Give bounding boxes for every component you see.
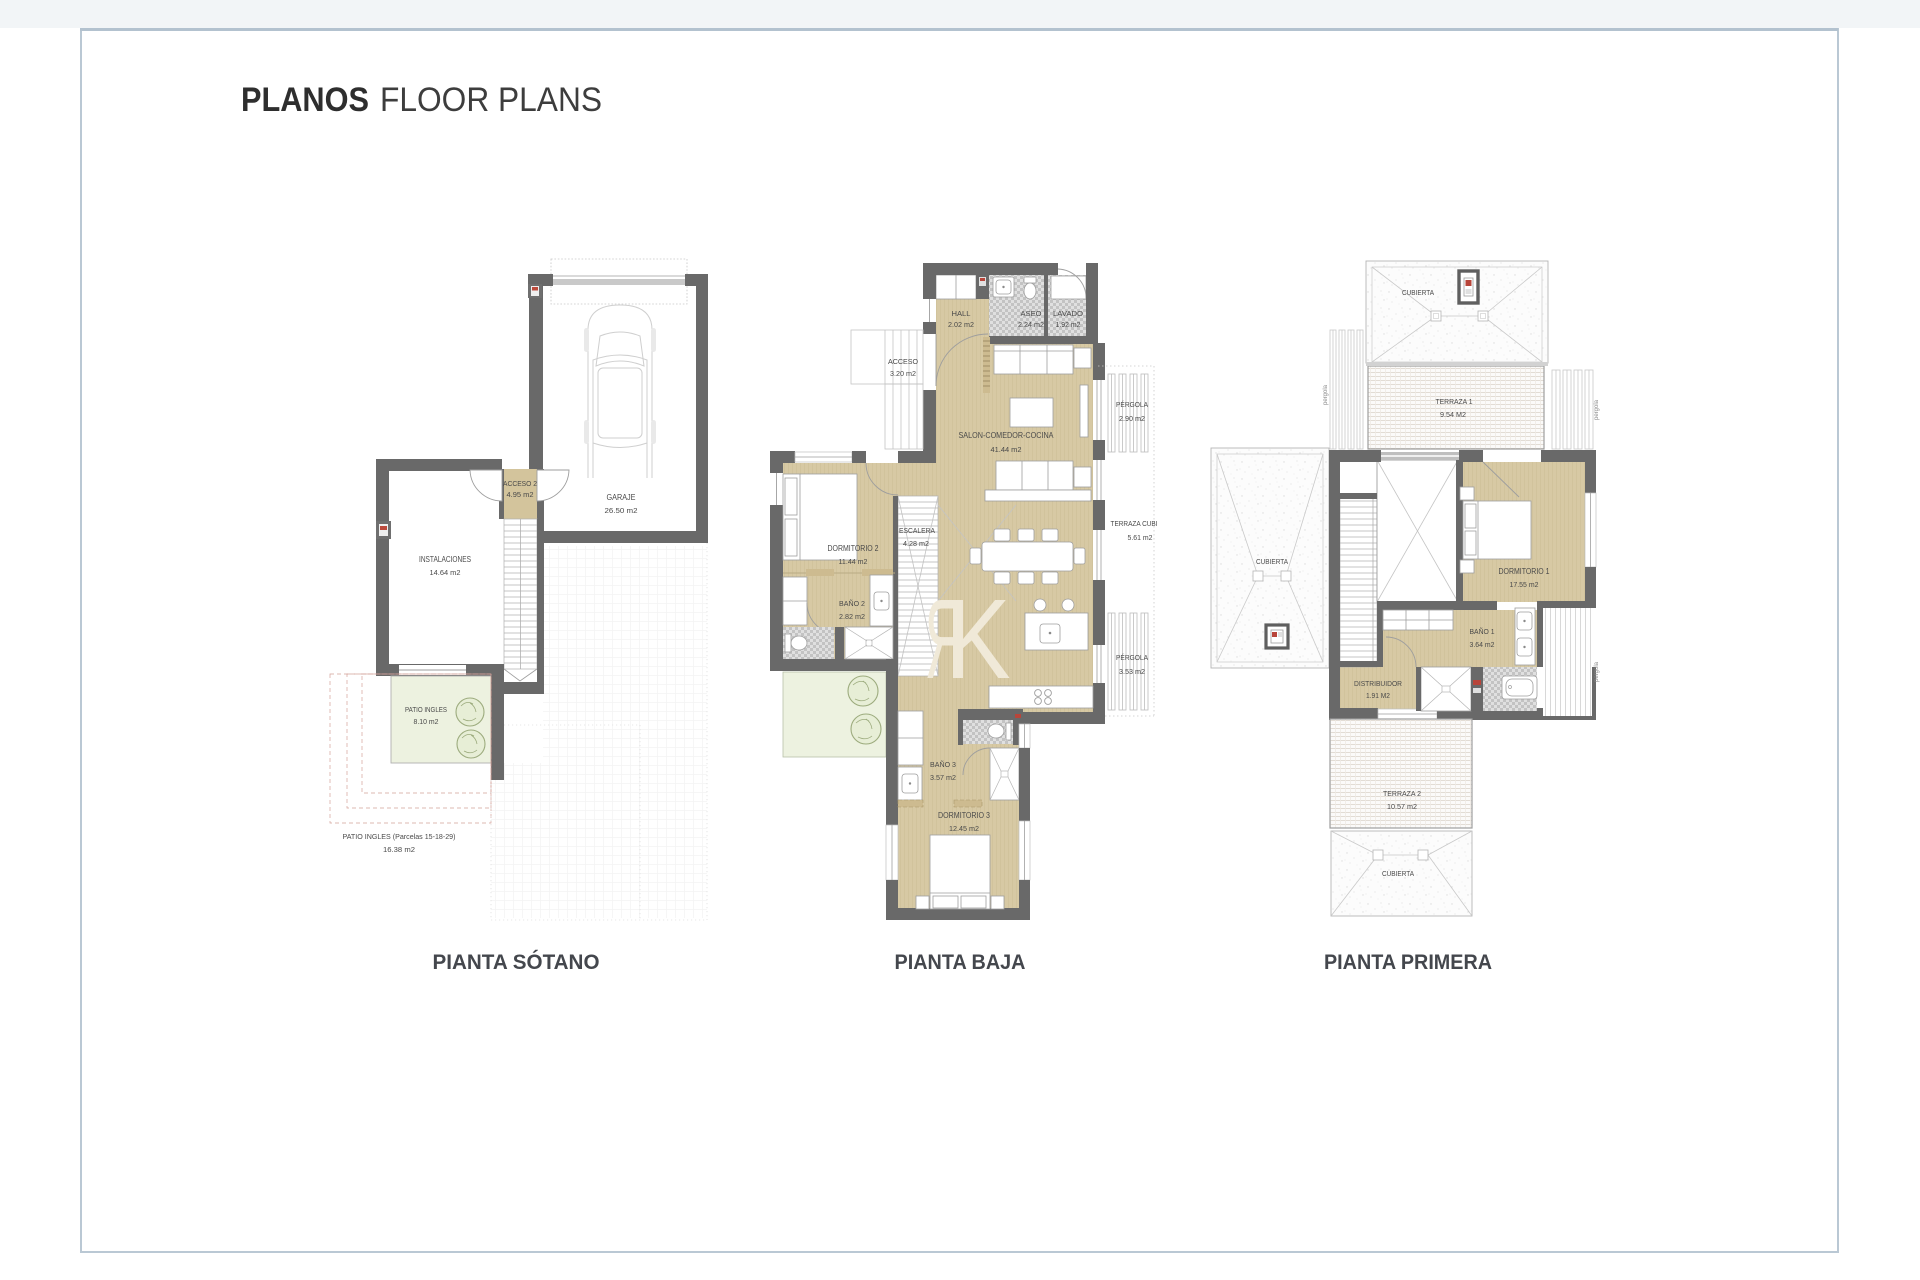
svg-text:16.38 m2: 16.38 m2 [383,845,415,854]
svg-text:PATIO INGLES: PATIO INGLES [405,705,447,714]
svg-text:2.90 m2: 2.90 m2 [1119,414,1145,423]
svg-text:2.02 m2: 2.02 m2 [948,320,974,329]
svg-text:41.44 m2: 41.44 m2 [991,445,1022,454]
svg-text:BAÑO 1: BAÑO 1 [1470,627,1495,636]
svg-text:1.91 M2: 1.91 M2 [1366,691,1390,700]
svg-text:CUBIERTA: CUBIERTA [1256,557,1289,566]
svg-text:K: K [946,577,1011,703]
svg-text:pergola: pergola [1323,384,1329,405]
svg-text:DISTRIBUIDOR: DISTRIBUIDOR [1354,679,1402,688]
svg-text:TERRAZA CUBI: TERRAZA CUBI [1111,519,1158,528]
svg-text:PIANTA BAJA: PIANTA BAJA [895,950,1026,974]
svg-text:26.50 m2: 26.50 m2 [605,506,638,515]
svg-text:CUBIERTA: CUBIERTA [1382,869,1415,878]
svg-text:12.45 m2: 12.45 m2 [949,824,979,833]
svg-text:17.55 m2: 17.55 m2 [1510,580,1539,589]
svg-text:11.44 m2: 11.44 m2 [839,557,868,566]
svg-text:2.24 m2: 2.24 m2 [1018,320,1044,329]
svg-text:DORMITORIO 1: DORMITORIO 1 [1499,566,1550,576]
svg-text:DORMITORIO 2: DORMITORIO 2 [828,543,879,553]
svg-text:3.20 m2: 3.20 m2 [890,369,916,378]
svg-text:4.28 m2: 4.28 m2 [903,539,929,548]
svg-text:8.10 m2: 8.10 m2 [414,717,439,726]
svg-text:SALON-COMEDOR-COCINA: SALON-COMEDOR-COCINA [959,430,1054,440]
svg-text:ASEO: ASEO [1021,309,1042,318]
svg-text:PIANTA PRIMERA: PIANTA PRIMERA [1324,950,1492,974]
svg-text:LAVADO: LAVADO [1053,309,1083,318]
svg-text:PATIO INGLES (Parcelas 15-18-2: PATIO INGLES (Parcelas 15-18-29) [343,832,456,841]
svg-text:BAÑO 3: BAÑO 3 [930,760,956,769]
svg-text:5.61 m2: 5.61 m2 [1128,533,1153,542]
svg-text:PÉRGOLA: PÉRGOLA [1116,400,1149,409]
svg-text:ESCALERA: ESCALERA [899,526,936,535]
svg-text:pergola: pergola [1594,399,1600,420]
svg-text:3.64 m2: 3.64 m2 [1470,640,1495,649]
svg-text:TERRAZA 2: TERRAZA 2 [1383,789,1421,798]
svg-text:4.95 m2: 4.95 m2 [507,490,534,499]
svg-text:BAÑO 2: BAÑO 2 [839,599,865,608]
svg-text:14.64 m2: 14.64 m2 [430,568,461,577]
svg-text:PÉRGOLA: PÉRGOLA [1116,653,1149,662]
svg-text:HALL: HALL [952,309,971,318]
svg-text:ACCESO 2: ACCESO 2 [503,479,537,488]
svg-text:10.57 m2: 10.57 m2 [1387,802,1417,811]
svg-text:2.82 m2: 2.82 m2 [839,612,865,621]
svg-text:TERRAZA 1: TERRAZA 1 [1436,397,1473,406]
svg-text:ACCESO: ACCESO [888,357,918,366]
svg-text:DORMITORIO 3: DORMITORIO 3 [938,810,990,820]
svg-text:3.57 m2: 3.57 m2 [930,773,956,782]
svg-text:1.92 m2: 1.92 m2 [1056,320,1081,329]
svg-text:pergola: pergola [1594,661,1600,682]
svg-text:PIANTA SÓTANO: PIANTA SÓTANO [433,949,600,974]
svg-text:9.54 M2: 9.54 M2 [1440,410,1466,419]
svg-text:GARAJE: GARAJE [607,492,636,502]
svg-text:INSTALACIONES: INSTALACIONES [419,554,471,564]
svg-text:FLOOR PLANS: FLOOR PLANS [380,81,602,119]
svg-text:3.53 m2: 3.53 m2 [1119,667,1145,676]
svg-text:PLANOS: PLANOS [241,81,369,119]
svg-text:CUBIERTA: CUBIERTA [1402,288,1435,297]
